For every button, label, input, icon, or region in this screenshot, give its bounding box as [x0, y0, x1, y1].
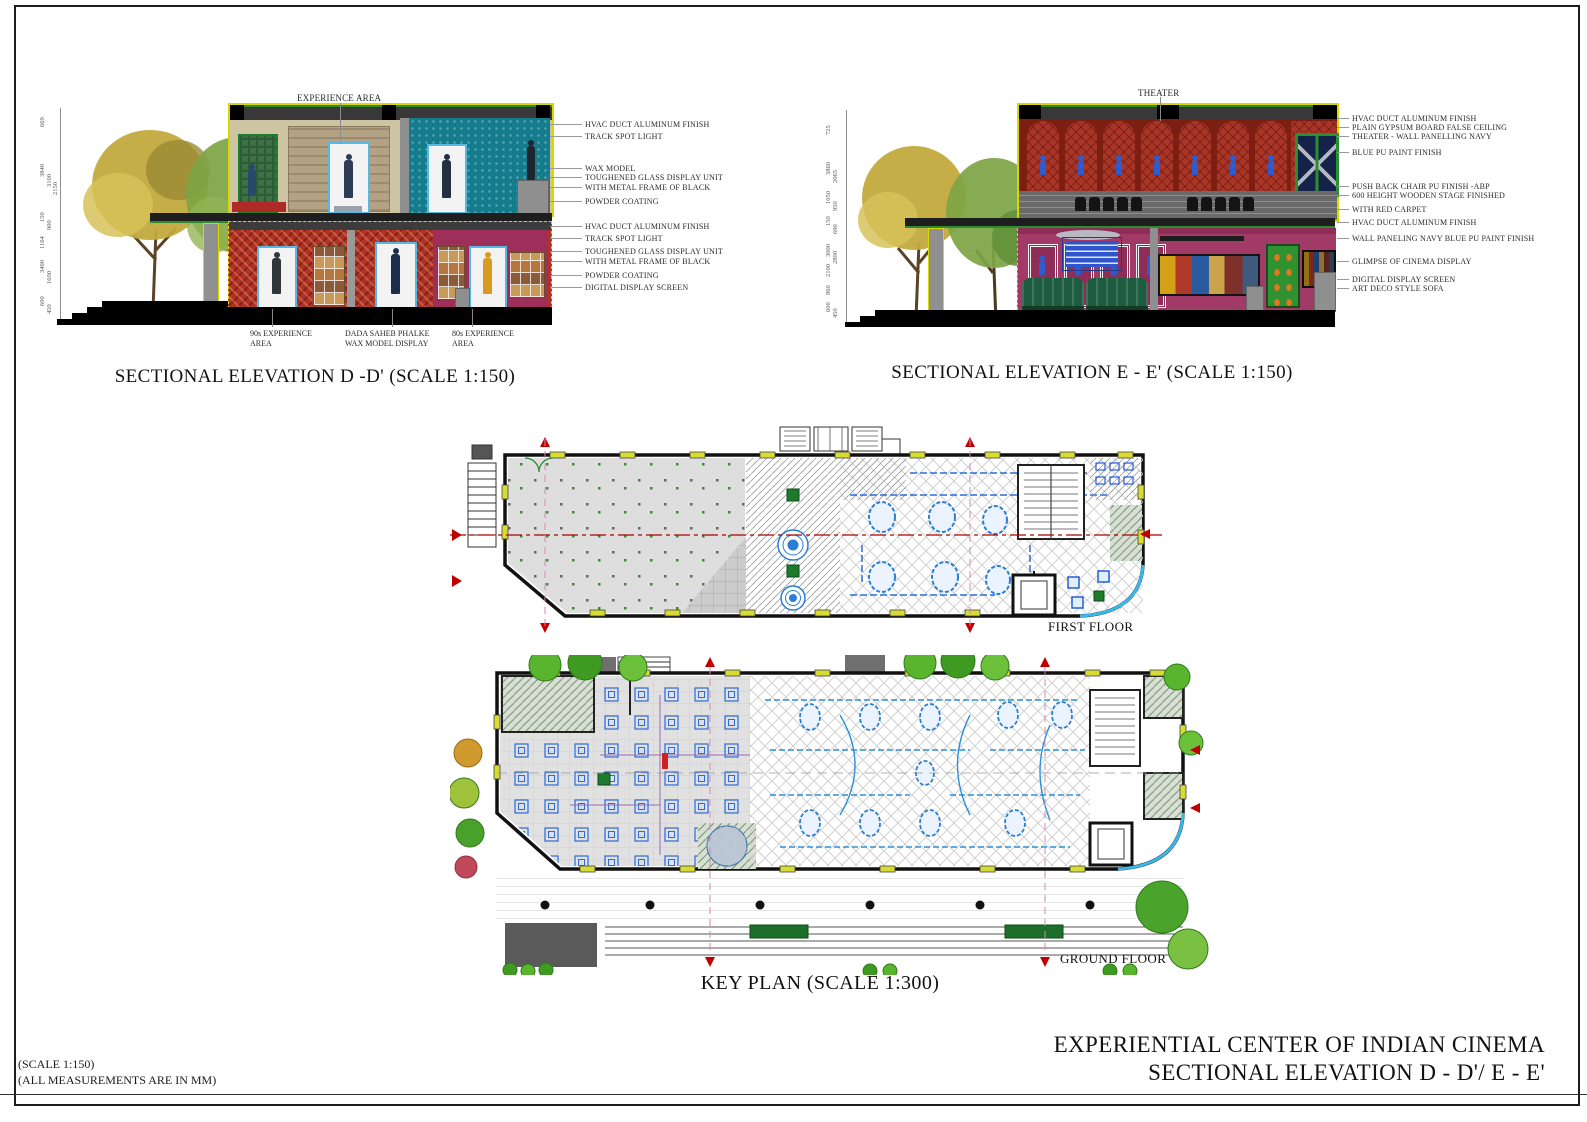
column	[400, 118, 409, 213]
theater-seat	[1117, 197, 1128, 211]
room-80s-experience	[433, 230, 547, 308]
scale-note: (SCALE 1:150)	[18, 1056, 216, 1072]
service-room	[502, 676, 594, 732]
annotation-text: POWDER COATING	[585, 197, 659, 206]
dimension-value: 2150	[52, 182, 59, 195]
cinema-display-screen	[1158, 254, 1260, 296]
side-room	[1110, 505, 1142, 561]
dimension-line-d	[60, 108, 61, 320]
theater-exit-door	[1295, 133, 1339, 197]
theater-seat	[1131, 197, 1142, 211]
blue-statue	[1192, 161, 1198, 175]
theater-arch-panel	[1179, 121, 1211, 191]
dimension-value: 2065	[832, 170, 839, 183]
annotation-leader	[1337, 195, 1349, 196]
service-room	[1144, 773, 1183, 819]
planter	[787, 489, 799, 501]
bottom-label-80s: 80s EXPERIENCE AREA	[452, 329, 524, 349]
wax-model-display	[427, 144, 467, 214]
annotation-text: BLUE PU PAINT FINISH	[1352, 148, 1442, 157]
annotation-leader	[550, 187, 582, 188]
sheet-notes: (SCALE 1:150) (ALL MEASUREMENTS ARE IN M…	[18, 1056, 216, 1088]
art-deco-sofa	[1022, 278, 1084, 310]
green-door	[1266, 244, 1300, 308]
dimension-value: 150	[39, 212, 46, 222]
photo-collage-wall	[313, 246, 345, 306]
external-stair-north	[780, 427, 900, 455]
wax-figure	[344, 160, 353, 198]
red-panel	[662, 753, 668, 769]
blue-statue	[1039, 261, 1045, 275]
elev-e-theater	[1017, 103, 1339, 222]
room-90s-experience	[229, 230, 347, 308]
photo-collage-wall	[509, 252, 545, 298]
dimension-line-e	[846, 110, 847, 322]
theater-arch-panel	[1141, 121, 1173, 191]
annotation-leader	[1337, 238, 1349, 239]
annotation-text: TOUGHENED GLASS DISPLAY UNIT	[585, 173, 723, 182]
pedestal	[1246, 286, 1264, 312]
elev-d-upper-floor	[228, 103, 554, 217]
ground-step	[102, 301, 228, 307]
annotation-text: HVAC DUCT ALUMINUM FINISH	[1352, 218, 1477, 227]
annotation-leader	[1337, 288, 1349, 289]
annotation-leader	[1337, 118, 1349, 119]
bottom-label-dadasaheb: DADA SAHEB PHALKE WAX MODEL DISPLAY	[345, 329, 445, 349]
label-leader	[272, 309, 273, 327]
blue-statue	[1154, 161, 1160, 175]
door-mullion	[1316, 136, 1319, 194]
annotation-text: WAX MODEL	[585, 164, 635, 173]
floor-slab	[905, 218, 1335, 228]
annotation-leader	[550, 251, 582, 252]
planter	[598, 773, 610, 785]
annotation-text: PLAIN GYPSUM BOARD FALSE CEILING	[1352, 123, 1507, 132]
annotation-text: 600 HEIGHT WOODEN STAGE FINISHED	[1352, 191, 1505, 200]
dimension-value: 1050	[825, 191, 832, 204]
wax-figure-yellow	[483, 258, 492, 294]
stair-hall	[1018, 465, 1084, 539]
art-deco-sofa	[1086, 278, 1148, 310]
annotation-leader	[550, 261, 582, 262]
display-base	[334, 206, 362, 212]
ground-step	[845, 322, 1335, 327]
room-zone	[840, 458, 906, 500]
dimension-value: 900	[46, 220, 53, 230]
blue-statue	[1078, 161, 1084, 175]
annotation-text: WITH METAL FRAME OF BLACK	[585, 257, 710, 266]
plinth	[517, 180, 549, 215]
label-leader	[392, 309, 393, 327]
external-stair-west	[468, 445, 496, 547]
theater-arch-panel	[1217, 121, 1249, 191]
theater-arch-panel	[1255, 121, 1287, 191]
step-planter	[1005, 925, 1063, 938]
dimension-value: 1600	[46, 271, 53, 284]
ceiling-band	[229, 222, 551, 230]
annotation-text: HVAC DUCT ALUMINUM FINISH	[1352, 114, 1477, 123]
step-planter	[750, 925, 808, 938]
annotation-leader	[550, 124, 582, 125]
column	[1150, 228, 1158, 310]
annotation-text: HVAC DUCT ALUMINUM FINISH	[585, 120, 710, 129]
annotation-leader	[1337, 209, 1349, 210]
first-floor-plan	[450, 425, 1165, 640]
label-leader	[340, 103, 341, 141]
ground-floor-plan	[450, 655, 1210, 975]
annotation-text: THEATER - WALL PANELLING NAVY	[1352, 132, 1492, 141]
annotation-text: ART DECO STYLE SOFA	[1352, 284, 1444, 293]
drawing-sheet: EXPERIENCE AREA 90s EXPERIENCE AREA DADA…	[0, 0, 1587, 1122]
blue-statue	[1116, 161, 1122, 175]
annotation-leader	[550, 275, 582, 276]
theater-seat	[1215, 197, 1226, 211]
theater-seat	[1243, 197, 1254, 211]
experience-area-label: EXPERIENCE AREA	[297, 93, 381, 103]
annotation-text: HVAC DUCT ALUMINUM FINISH	[585, 222, 710, 231]
annotation-leader	[550, 177, 582, 178]
ground-floor-label: GROUND FLOOR	[1060, 951, 1166, 967]
annotation-text: TRACK SPOT LIGHT	[585, 132, 663, 141]
elev-d-lower-floor	[228, 221, 552, 309]
elev-e-lower-floor	[1017, 228, 1336, 310]
wax-figure	[272, 258, 281, 294]
track-light-bar	[1160, 236, 1244, 241]
dimension-value: 3490	[39, 260, 46, 273]
cinema-marquee-sign	[1062, 237, 1122, 271]
annotation-leader	[1337, 279, 1349, 280]
room-dadasaheb-display	[355, 230, 433, 308]
sheet-title: SECTIONAL ELEVATION D - D'/ E - E'	[690, 1060, 1545, 1086]
annotation-text: POWDER COATING	[585, 271, 659, 280]
blue-statue	[1268, 161, 1274, 175]
bottom-label-90s: 90s EXPERIENCE AREA	[250, 329, 332, 349]
theater-seat	[1103, 197, 1114, 211]
experience-area-room	[232, 118, 400, 213]
annotation-leader	[1337, 136, 1349, 137]
measurement-note: (ALL MEASUREMENTS ARE IN MM)	[18, 1072, 216, 1088]
annotation-leader	[550, 136, 582, 137]
project-title: EXPERIENTIAL CENTER OF INDIAN CINEMA	[690, 1032, 1545, 1058]
wax-figure	[442, 160, 451, 198]
wax-model-display	[328, 142, 370, 214]
dimension-value: 450	[46, 304, 53, 314]
annotation-text: GLIMPSE OF CINEMA DISPLAY	[1352, 257, 1472, 266]
theater-seat	[1201, 197, 1212, 211]
theater-seat	[1229, 197, 1240, 211]
pedestal	[1314, 272, 1336, 312]
annotation-text: TRACK SPOT LIGHT	[585, 234, 663, 243]
column-head	[1313, 105, 1337, 119]
elevator	[1090, 823, 1132, 865]
dimension-value: 950	[832, 201, 839, 211]
annotation-leader	[1337, 261, 1349, 262]
dimension-value: 2100	[825, 264, 832, 277]
dimension-value: 2800	[832, 251, 839, 264]
dimension-value: 1164	[39, 236, 46, 249]
dimension-value: 3840	[39, 164, 46, 177]
wax-model-display	[469, 246, 507, 310]
annotation-leader	[550, 168, 582, 169]
dimension-value: 450	[832, 308, 839, 318]
dimension-value: 669	[39, 117, 46, 127]
titleblock-rule	[0, 1094, 1587, 1095]
wax-model-display	[257, 246, 297, 310]
theater-seat	[1089, 197, 1100, 211]
mosaic-circle	[698, 823, 756, 869]
blue-statue	[1230, 161, 1236, 175]
annotation-leader	[1337, 222, 1349, 223]
label-leader	[1160, 97, 1161, 121]
blue-statue	[1040, 161, 1046, 175]
dimension-value: 690	[832, 224, 839, 234]
dimension-value: 725	[825, 125, 832, 135]
theater-seat	[1187, 197, 1198, 211]
exterior-column	[928, 228, 944, 312]
theater-arch-panel	[1103, 121, 1135, 191]
annotation-text: WITH RED CARPET	[1352, 205, 1427, 214]
visitor-figure	[527, 146, 535, 180]
red-platform	[232, 202, 286, 212]
annotation-leader	[1337, 127, 1349, 128]
annotation-leader	[550, 201, 582, 202]
annotation-leader	[1337, 152, 1349, 153]
annotation-leader	[1337, 186, 1349, 187]
annotation-leader	[550, 238, 582, 239]
elevation-d-title: SECTIONAL ELEVATION D -D' (SCALE 1:150)	[85, 366, 545, 388]
first-floor-label: FIRST FLOOR	[1048, 619, 1133, 635]
dimension-value: 150	[825, 216, 832, 226]
planter	[787, 565, 799, 577]
dimension-value: 860	[825, 285, 832, 295]
dimension-value: 3860	[825, 162, 832, 175]
plaza-paving	[497, 873, 1183, 923]
wax-model-display	[375, 242, 417, 310]
column-head	[1019, 105, 1041, 119]
theater-seat	[1075, 197, 1086, 211]
theater-arch-panel	[1065, 121, 1097, 191]
elevation-e-title: SECTIONAL ELEVATION E - E' (SCALE 1:150)	[862, 362, 1322, 384]
annotation-text: DIGITAL DISPLAY SCREEN	[585, 283, 688, 292]
theater-label: THEATER	[1138, 88, 1179, 98]
key-plan-title: KEY PLAN (SCALE 1:300)	[600, 972, 1040, 995]
annotation-leader	[550, 226, 582, 227]
label-leader	[472, 309, 473, 327]
ground-step	[57, 319, 552, 325]
entry-pad	[505, 923, 597, 967]
elevator	[1013, 571, 1055, 615]
titleblock: EXPERIENTIAL CENTER OF INDIAN CINEMA SEC…	[690, 1032, 1545, 1086]
theater-arch-panel	[1027, 121, 1059, 191]
column	[347, 230, 355, 308]
visitor-figure	[248, 170, 256, 196]
theater-stepped-floor	[1019, 191, 1337, 220]
experience-area-room-teal	[409, 118, 550, 213]
annotation-text: WALL PANELING NAVY BLUE PU PAINT FINISH	[1352, 234, 1534, 243]
dimension-value: 600	[825, 302, 832, 312]
dimension-value: 3000	[825, 244, 832, 257]
wax-figure-suit	[391, 254, 400, 294]
annotation-leader	[550, 287, 582, 288]
exterior-column	[203, 223, 219, 311]
stair-hall	[1090, 690, 1140, 766]
annotation-text: WITH METAL FRAME OF BLACK	[585, 183, 710, 192]
annotation-text: PUSH BACK CHAIR PU FINISH -ABP	[1352, 182, 1490, 191]
dimension-value: 600	[39, 296, 46, 306]
annotation-text: TOUGHENED GLASS DISPLAY UNIT	[585, 247, 723, 256]
annotation-text: DIGITAL DISPLAY SCREEN	[1352, 275, 1455, 284]
